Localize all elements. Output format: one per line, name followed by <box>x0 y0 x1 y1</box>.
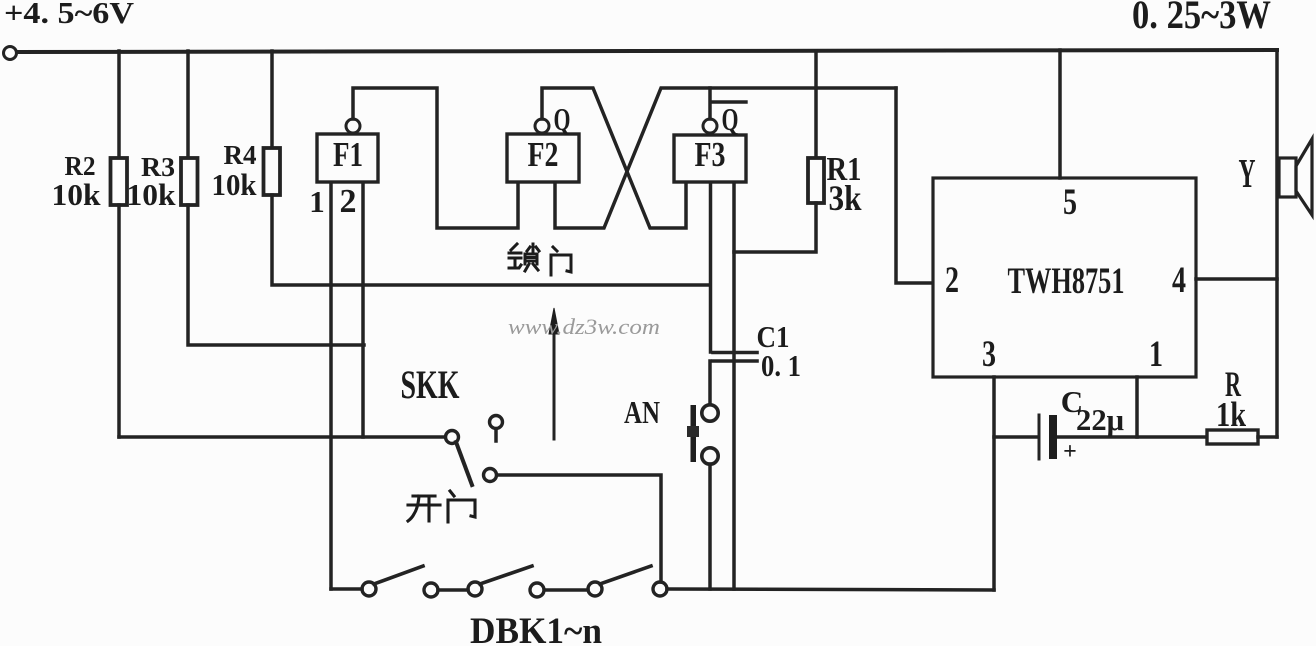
svg-text:Q: Q <box>722 101 739 137</box>
svg-text:www.dz3w.com: www.dz3w.com <box>508 314 660 339</box>
svg-text:0. 25~3W: 0. 25~3W <box>1132 0 1271 37</box>
svg-text:10k: 10k <box>212 167 258 202</box>
svg-text:Y: Y <box>1239 150 1256 196</box>
svg-text:2: 2 <box>340 183 357 220</box>
svg-text:22μ: 22μ <box>1076 402 1124 437</box>
svg-text:F3: F3 <box>695 135 726 174</box>
svg-text:AN: AN <box>624 394 660 430</box>
svg-text:1: 1 <box>1149 334 1163 375</box>
svg-text:TWH8751: TWH8751 <box>1008 261 1125 302</box>
svg-text:Q: Q <box>554 101 571 137</box>
svg-text:1: 1 <box>309 184 325 219</box>
svg-text:F1: F1 <box>333 135 363 174</box>
svg-text:3k: 3k <box>829 178 862 218</box>
svg-text:4: 4 <box>1172 260 1186 301</box>
svg-text:5: 5 <box>1063 182 1077 223</box>
svg-text:1k: 1k <box>1216 395 1246 434</box>
svg-text:R4: R4 <box>224 140 257 170</box>
svg-text:+: + <box>1063 439 1077 465</box>
svg-text:DBK1~n: DBK1~n <box>470 611 602 646</box>
svg-text:10k: 10k <box>127 177 177 212</box>
svg-text:F2: F2 <box>528 135 559 174</box>
svg-text:0. 1: 0. 1 <box>761 348 801 383</box>
svg-text:3: 3 <box>982 334 996 375</box>
svg-text:10k: 10k <box>52 177 102 212</box>
svg-text:2: 2 <box>945 260 959 301</box>
svg-text:+4. 5~6V: +4. 5~6V <box>4 0 135 30</box>
svg-text:SKK: SKK <box>401 362 460 407</box>
